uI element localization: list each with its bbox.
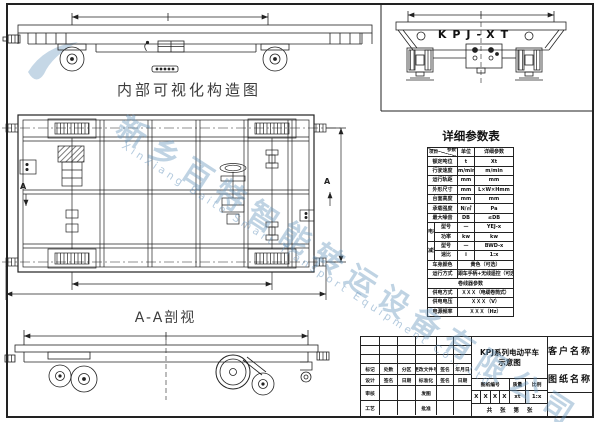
param-row-reducer: 速比i1:x — [428, 251, 514, 260]
drawing-name-cell: 图纸名称 — [548, 365, 592, 393]
param-row: 车身颜色黄色（可选） — [428, 260, 514, 269]
title-block-name-area: 客户名称 图纸名称 — [547, 337, 592, 416]
title-block-empty-cell — [548, 393, 592, 416]
param-table: 参数 项目 单位 详细参数 额定吨位tXt 行驶速度m/minm/min 运行轨… — [427, 147, 514, 317]
title-block-field-value-row: X X X X xt 1:x — [472, 391, 547, 404]
side-view-drawing — [3, 13, 372, 72]
section-view-drawing — [5, 330, 329, 400]
param-row: 运行轨距mmmm — [428, 176, 514, 185]
param-row: 供电方式ＸＸＸ（电缆卷筒式） — [428, 288, 514, 297]
param-row: 承载强度N/㎡Pa — [428, 204, 514, 213]
drawing-sheet: 新乡百特智能转运设备有限公司 Xinxiang Baite Smart Tran… — [0, 0, 600, 422]
customer-name-cell: 客户名称 — [548, 337, 592, 365]
param-group-reducer: 减速机 — [428, 241, 435, 260]
title-block-sign-header-row: 设计 签名 日期 标准化 签名 日期 — [361, 375, 471, 386]
title-block-check-row: 审核 发图 — [361, 386, 471, 401]
model-label: KPJ-XT — [424, 28, 528, 41]
param-table-title: 详细参数表 — [427, 128, 515, 144]
param-row-motor: 电机 型号—YEJ-x — [428, 223, 514, 232]
param-row: 最大噪音DB≤DB — [428, 213, 514, 222]
param-header-unit: 单位 — [458, 148, 475, 157]
param-header-corner: 参数 项目 — [428, 148, 458, 157]
param-row-motor: 功率kwkw — [428, 232, 514, 241]
param-row: 运行方式跟车手柄+无线遥控（可选） — [428, 270, 514, 279]
title-block: 标记 处数 分区 更改文件号 签名 年月日 设计 签名 日期 标准化 签名 日期… — [360, 336, 593, 417]
param-row: 外形尺寸mmL×W×Hmm — [428, 185, 514, 194]
param-header-row: 参数 项目 单位 详细参数 — [428, 148, 514, 157]
param-section-row: 卷线器参数 — [428, 279, 514, 288]
plan-view-drawing — [2, 115, 346, 300]
title-block-rev-header-row: 标记 处数 分区 更改文件号 签名 年月日 — [361, 364, 471, 375]
param-row-reducer: 减速机 型号—BWD-x — [428, 241, 514, 250]
logo-swoosh — [28, 42, 78, 80]
param-header-value: 详细参数 — [475, 148, 514, 157]
title-block-sheet-row: 共 张 第 张 — [472, 404, 547, 416]
drawing-title: KPJ系列电动平车 示意图 — [472, 337, 547, 379]
param-row: 电源频率ＸＸＸ（Hz） — [428, 307, 514, 316]
section-marker-a-right: A — [324, 177, 330, 186]
param-row: 台面高度mmmm — [428, 194, 514, 203]
param-row: 供电电压ＸＸＸ（V） — [428, 298, 514, 307]
section-view-label: A-A剖视 — [118, 307, 213, 327]
section-marker-a-left: A — [20, 182, 26, 191]
title-block-center-area: KPJ系列电动平车 示意图 图纸编号 质量 比例 X X X X xt 1:x … — [471, 337, 547, 416]
param-group-motor: 电机 — [428, 223, 435, 242]
title-block-field-header-row: 图纸编号 质量 比例 — [472, 379, 547, 391]
param-row: 行驶速度m/minm/min — [428, 166, 514, 175]
title-block-revision-area: 标记 处数 分区 更改文件号 签名 年月日 设计 签名 日期 标准化 签名 日期… — [361, 337, 471, 416]
title-block-process-row: 工艺 批准 — [361, 401, 471, 415]
end-view-drawing — [396, 11, 566, 84]
internal-view-label: 内部可视化构造图 — [104, 79, 274, 100]
param-row: 额定吨位tXt — [428, 157, 514, 166]
